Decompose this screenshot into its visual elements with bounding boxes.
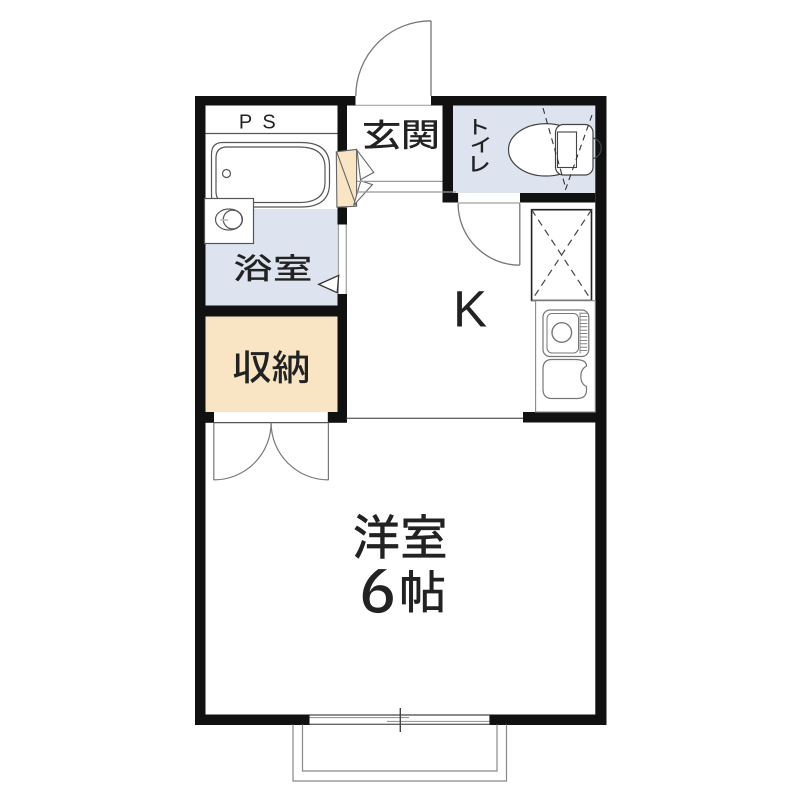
svg-text:K: K: [453, 281, 487, 338]
svg-text:P S: P S: [239, 112, 278, 134]
